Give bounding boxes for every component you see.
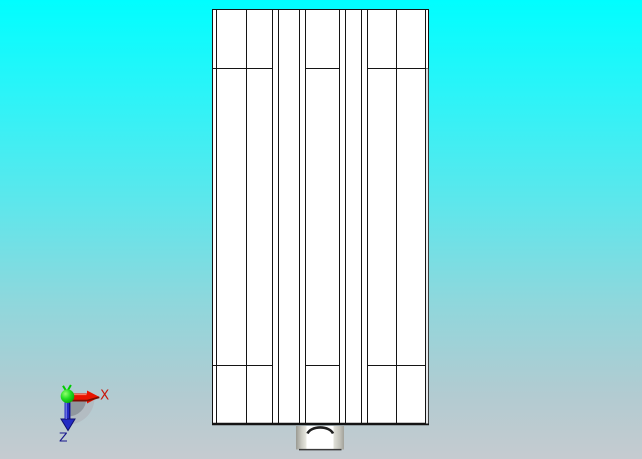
model-foot-boss[interactable] — [296, 426, 344, 450]
model-part-body[interactable] — [212, 10, 429, 425]
z-axis-label: Z — [59, 430, 68, 445]
foot-left-face — [296, 426, 307, 450]
foot-right-face — [334, 426, 345, 450]
model-right-side-face — [426, 69, 428, 424]
viewport-canvas[interactable]: X Z — [0, 0, 642, 459]
y-axis-origin-ball — [61, 385, 75, 403]
cad-viewport[interactable]: X Z — [0, 0, 642, 459]
x-axis-label: X — [100, 388, 109, 404]
orientation-triad: X Z — [59, 385, 109, 445]
